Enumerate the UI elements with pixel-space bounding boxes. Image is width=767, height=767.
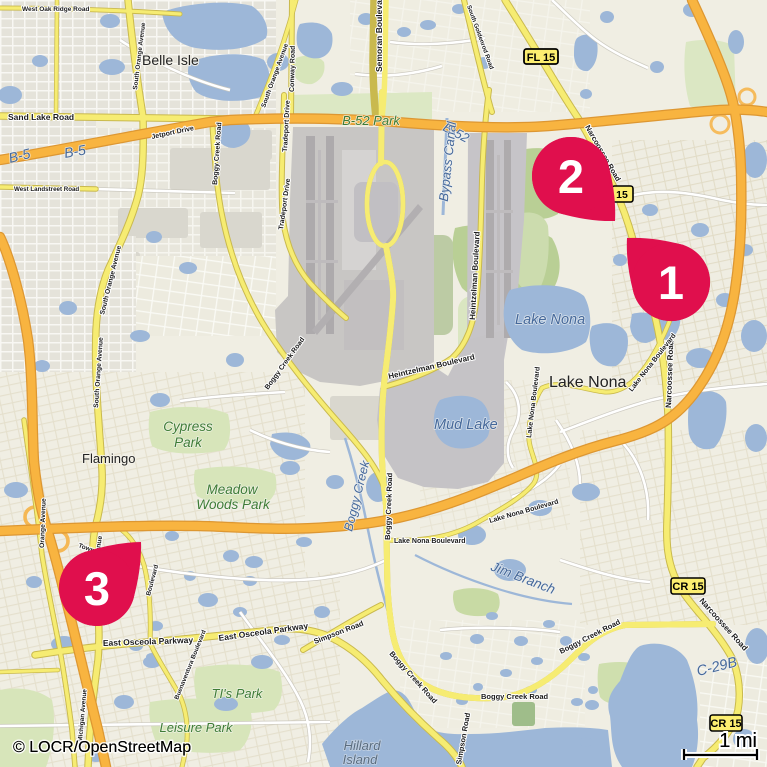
svg-text:Conway Road: Conway Road — [289, 46, 297, 92]
svg-text:Flamingo: Flamingo — [82, 451, 135, 466]
svg-text:West Oak Ridge Road: West Oak Ridge Road — [22, 6, 89, 13]
svg-text:1: 1 — [658, 256, 684, 309]
svg-text:2: 2 — [558, 150, 584, 203]
svg-text:Sand Lake Road: Sand Lake Road — [8, 112, 74, 122]
svg-text:Woods Park: Woods Park — [196, 497, 271, 512]
svg-text:1 mi: 1 mi — [719, 730, 757, 752]
svg-text:Boggy Creek Road: Boggy Creek Road — [481, 692, 549, 701]
svg-text:15: 15 — [616, 189, 628, 201]
svg-text:Meadow: Meadow — [206, 482, 258, 497]
svg-text:CR 15: CR 15 — [672, 581, 703, 593]
svg-text:Lake Nona: Lake Nona — [549, 374, 626, 391]
svg-text:Belle Isle: Belle Isle — [142, 52, 199, 68]
svg-text:Cypress: Cypress — [163, 419, 213, 434]
svg-text:West Landstreet Road: West Landstreet Road — [14, 186, 79, 193]
svg-text:3: 3 — [84, 562, 110, 615]
svg-text:© LOCR/OpenStreetMap: © LOCR/OpenStreetMap — [13, 739, 191, 756]
svg-text:Mud Lake: Mud Lake — [434, 417, 498, 433]
svg-text:Lake Nona Boulevard: Lake Nona Boulevard — [394, 538, 466, 545]
svg-text:FL 15: FL 15 — [527, 52, 556, 64]
svg-text:Park: Park — [174, 435, 203, 450]
svg-text:CR 15: CR 15 — [710, 718, 741, 730]
svg-text:B-52 Park: B-52 Park — [342, 113, 401, 128]
svg-text:Semoran Boulevard: Semoran Boulevard — [374, 0, 384, 72]
svg-text:TI's Park: TI's Park — [212, 686, 264, 701]
svg-text:Leisure Park: Leisure Park — [160, 720, 234, 735]
svg-text:Lake Nona: Lake Nona — [515, 312, 585, 328]
svg-text:Island: Island — [343, 752, 378, 767]
svg-text:Hillard: Hillard — [344, 738, 382, 753]
